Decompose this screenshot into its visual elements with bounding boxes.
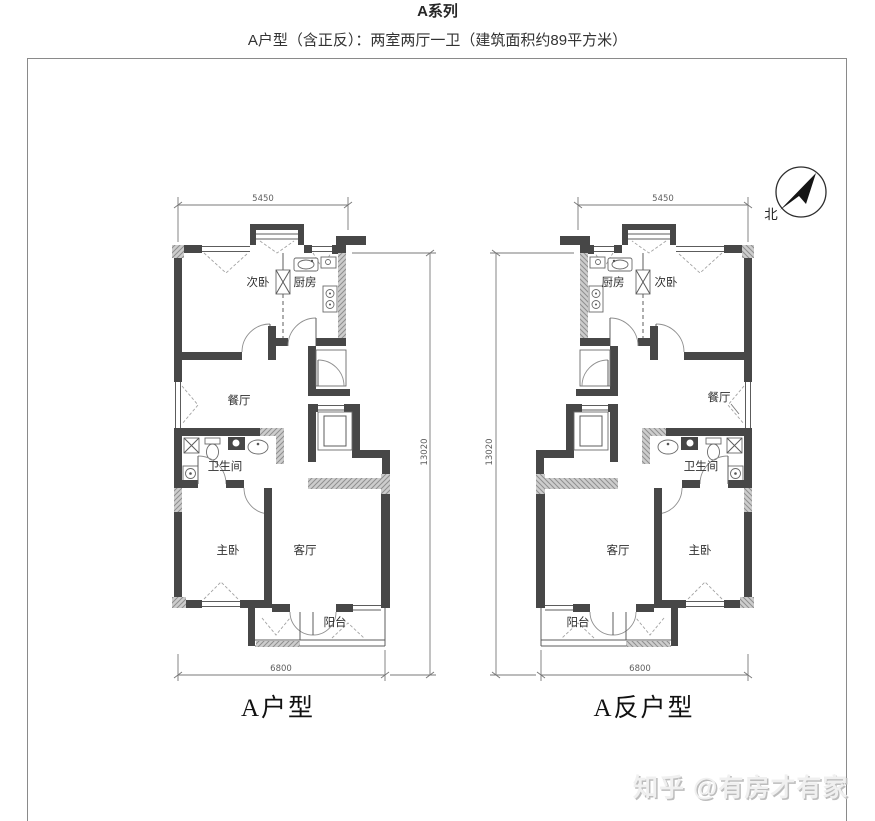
page-title: A系列 xyxy=(0,0,875,20)
dining-leader-line xyxy=(731,404,739,414)
page-subtitle: A户型（含正反）：两室两厅一卫（建筑面积约89平方米） xyxy=(0,31,875,51)
room-label-kitchen: 厨房 xyxy=(294,276,317,289)
compass-north-label: 北 xyxy=(764,207,778,222)
room-label-secondary-bedroom: 次卧 xyxy=(655,275,678,289)
dim-width-bottom: 6800 xyxy=(629,664,651,674)
room-label-bathroom: 卫生间 xyxy=(684,459,719,473)
room-label-dining: 餐厅 xyxy=(228,393,251,407)
room-label-living: 客厅 xyxy=(294,543,317,557)
room-label-balcony: 阳台 xyxy=(567,615,590,629)
room-label-balcony: 阳台 xyxy=(324,615,347,629)
room-label-living: 客厅 xyxy=(607,543,630,557)
room-label-dining: 餐厅 xyxy=(708,390,731,404)
dim-width-top: 5450 xyxy=(252,194,274,204)
page-header: A系列 A户型（含正反）：两室两厅一卫（建筑面积约89平方米） xyxy=(0,0,875,51)
room-label-bathroom: 卫生间 xyxy=(208,459,243,473)
room-label-master-bedroom: 主卧 xyxy=(689,544,712,557)
dim-width-top: 5450 xyxy=(652,194,674,204)
floor-plan-left-geometry xyxy=(172,197,436,681)
dim-height-side: 13020 xyxy=(420,438,430,465)
plan-name-left: A户型 xyxy=(241,694,315,722)
plan-name-right: A反户型 xyxy=(593,694,694,722)
room-label-master-bedroom: 主卧 xyxy=(217,544,240,557)
dim-width-bottom: 6800 xyxy=(270,664,292,674)
room-label-kitchen: 厨房 xyxy=(602,276,625,289)
floor-plan-canvas: 北 次卧 厨房 餐厅 卫生间 主卧 客厅 阳台 5450 6800 13020 … xyxy=(27,58,847,820)
floor-plan-left-labels: 次卧 厨房 餐厅 卫生间 主卧 客厅 阳台 5450 6800 13020 A户… xyxy=(208,194,430,722)
dim-height-side: 13020 xyxy=(485,438,495,465)
watermark: 知乎 @有房才有家 xyxy=(633,768,873,804)
floor-plan-right-geometry xyxy=(490,197,754,681)
compass: 北 xyxy=(764,167,826,222)
room-label-secondary-bedroom: 次卧 xyxy=(247,275,270,289)
